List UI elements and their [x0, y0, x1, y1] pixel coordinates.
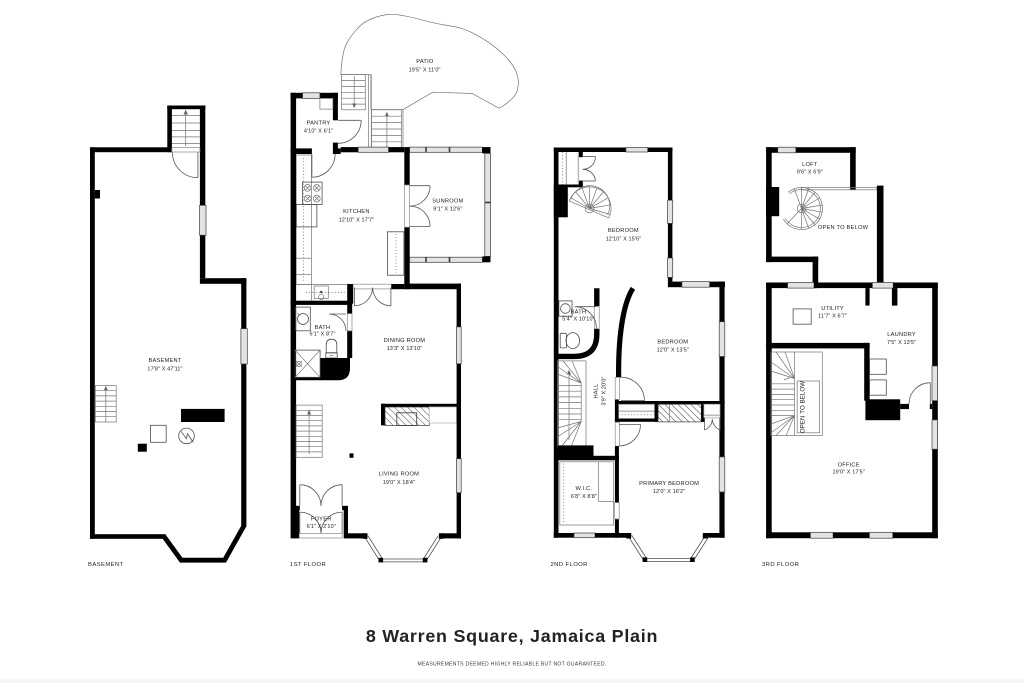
svg-text:6'1" X 8'7": 6'1" X 8'7"	[309, 331, 335, 337]
svg-text:BATH: BATH	[315, 325, 331, 331]
svg-text:DINING ROOM: DINING ROOM	[384, 338, 426, 344]
svg-text:12'10" X 15'6": 12'10" X 15'6"	[606, 236, 642, 242]
svg-text:OPEN TO BELOW: OPEN TO BELOW	[800, 381, 807, 433]
svg-text:SUNROOM: SUNROOM	[432, 199, 463, 205]
svg-text:PATIO: PATIO	[416, 59, 434, 65]
svg-text:UTILITY: UTILITY	[821, 306, 844, 312]
svg-text:11'7" X 6'7": 11'7" X 6'7"	[818, 314, 847, 320]
svg-text:MEASUREMENTS DEEMED HIGHLY REL: MEASUREMENTS DEEMED HIGHLY RELIABLE BUT …	[417, 662, 606, 668]
svg-text:19'0" X 18'4": 19'0" X 18'4"	[383, 480, 415, 486]
svg-text:7'5" X 13'5": 7'5" X 13'5"	[887, 340, 916, 346]
svg-text:KITCHEN: KITCHEN	[343, 209, 370, 215]
svg-text:1ST FLOOR: 1ST FLOOR	[290, 562, 326, 568]
svg-text:OPEN TO BELOW: OPEN TO BELOW	[818, 225, 869, 231]
svg-text:PRIMARY BEDROOM: PRIMARY BEDROOM	[639, 481, 699, 487]
svg-text:8 Warren Square, Jamaica Plain: 8 Warren Square, Jamaica Plain	[366, 626, 658, 646]
svg-text:BATH: BATH	[571, 310, 587, 316]
svg-text:12'10" X 17'7": 12'10" X 17'7"	[339, 218, 375, 224]
svg-text:BASEMENT: BASEMENT	[88, 562, 124, 568]
svg-text:19'0" X 17'5": 19'0" X 17'5"	[833, 470, 865, 476]
svg-text:BEDROOM: BEDROOM	[657, 340, 688, 346]
svg-text:LOFT: LOFT	[802, 162, 818, 168]
svg-text:19'5" X 11'0": 19'5" X 11'0"	[409, 68, 441, 74]
svg-text:W.I.C.: W.I.C.	[575, 486, 592, 492]
svg-text:BEDROOM: BEDROOM	[608, 228, 639, 234]
svg-text:5'4" X 10'10": 5'4" X 10'10"	[562, 317, 594, 323]
svg-text:17'8" X 47'11": 17'8" X 47'11"	[147, 367, 182, 373]
svg-text:9'1" X 12'6": 9'1" X 12'6"	[433, 207, 462, 213]
svg-text:LIVING ROOM: LIVING ROOM	[379, 472, 419, 478]
svg-text:OFFICE: OFFICE	[838, 463, 860, 469]
svg-text:12'0" X 16'2": 12'0" X 16'2"	[653, 489, 685, 495]
svg-text:6'1" X 2'10": 6'1" X 2'10"	[307, 524, 336, 530]
svg-text:PANTRY: PANTRY	[307, 120, 331, 126]
svg-text:2ND FLOOR: 2ND FLOOR	[551, 562, 588, 568]
svg-text:12'0" X 13'5": 12'0" X 13'5"	[657, 347, 689, 353]
svg-text:3'9" X 20'0": 3'9" X 20'0"	[602, 376, 608, 405]
svg-text:BASEMENT: BASEMENT	[148, 358, 181, 364]
svg-text:FOYER: FOYER	[311, 516, 332, 522]
svg-text:13'3" X 13'10": 13'3" X 13'10"	[387, 346, 423, 352]
svg-text:HALL: HALL	[594, 383, 600, 398]
svg-text:4'10" X 6'1": 4'10" X 6'1"	[304, 128, 333, 134]
svg-text:9'6" X 6'9": 9'6" X 6'9"	[797, 170, 823, 176]
svg-text:LAUNDRY: LAUNDRY	[887, 332, 916, 338]
svg-text:6'8" X 8'8": 6'8" X 8'8"	[571, 494, 597, 500]
svg-text:3RD FLOOR: 3RD FLOOR	[762, 562, 799, 568]
